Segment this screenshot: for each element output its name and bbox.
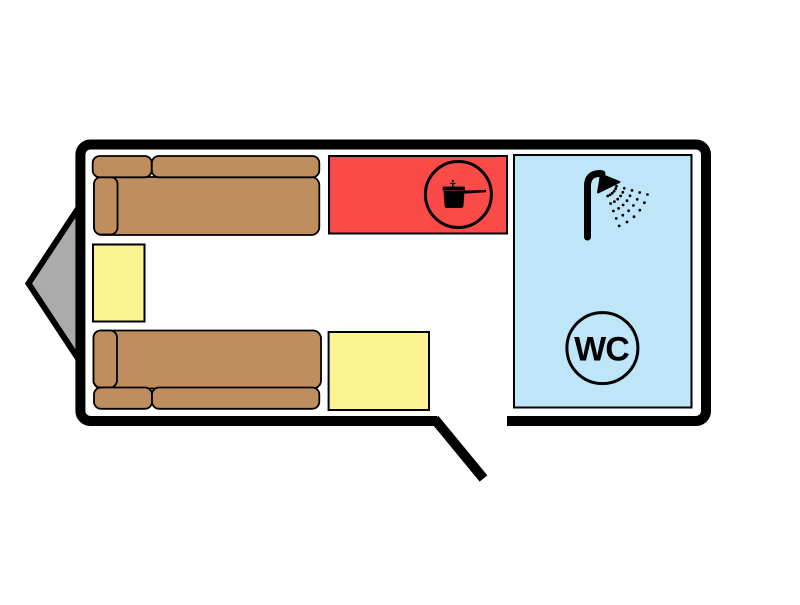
svg-text:WC: WC	[574, 331, 629, 369]
